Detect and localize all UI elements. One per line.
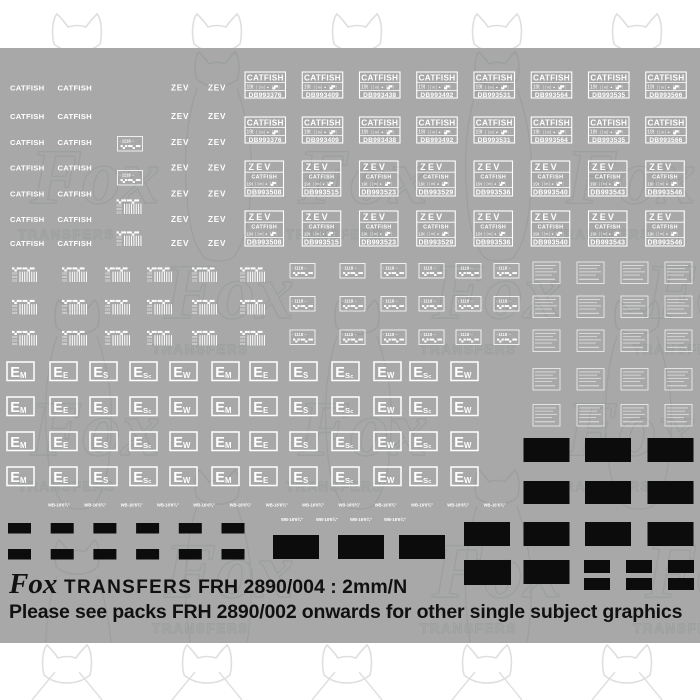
svg-text:DB993438: DB993438 [363, 92, 396, 99]
svg-text:S: S [103, 406, 108, 415]
svg-text:CATFISH: CATFISH [10, 138, 45, 147]
svg-text:▀▄▀ ▀▀▄ ▀▀: ▀▄▀ ▀▀▄ ▀▀ [121, 179, 142, 183]
svg-text:E: E [63, 441, 68, 450]
svg-text:≡≡≡: ≡≡≡ [62, 311, 68, 315]
svg-text:▀▄▀ ▀▀▄ ▀▀: ▀▄▀ ▀▀▄ ▀▀ [384, 339, 405, 343]
svg-text:CATFISH: CATFISH [58, 83, 93, 92]
svg-text:∙ 1118 ∙∙: ∙ 1118 ∙∙ [342, 332, 357, 337]
svg-text:CATFISH: CATFISH [533, 74, 570, 83]
svg-text:M: M [20, 476, 27, 485]
svg-text:CATFISH: CATFISH [476, 74, 513, 83]
svg-text:19t: 19t [418, 85, 426, 91]
svg-text:E: E [413, 400, 423, 416]
svg-text:FRH 2890/004 : 2mm/N: FRH 2890/004 : 2mm/N [198, 576, 407, 598]
svg-text:E: E [53, 435, 63, 451]
svg-text:DB993376: DB993376 [249, 137, 282, 144]
svg-text:19t: 19t [590, 231, 597, 236]
svg-text:∙ 1118 ∙∙: ∙ 1118 ∙∙ [496, 299, 511, 304]
svg-text:19t: 19t [418, 130, 426, 136]
svg-text:WB-16′6¾″: WB-16′6¾″ [121, 503, 143, 508]
svg-text:19t: 19t [247, 231, 254, 236]
svg-text:E: E [10, 365, 20, 381]
svg-text:ZEV: ZEV [208, 189, 226, 198]
svg-text:DB993540: DB993540 [533, 189, 568, 196]
svg-text:E: E [413, 365, 423, 381]
svg-text:WB-16′6¾″: WB-16′6¾″ [230, 503, 252, 508]
svg-text:E: E [93, 435, 103, 451]
svg-text:CATFISH: CATFISH [590, 74, 627, 83]
svg-text:E: E [173, 470, 183, 486]
svg-text:∙ 1118 ∙∙: ∙ 1118 ∙∙ [292, 332, 307, 337]
svg-text:E: E [293, 400, 303, 416]
svg-text:E: E [253, 470, 263, 486]
svg-text:19t: 19t [476, 85, 484, 91]
svg-text:19t: 19t [418, 181, 425, 186]
svg-text:E: E [63, 406, 68, 415]
svg-text:19t: 19t [590, 130, 598, 136]
svg-text:c: c [148, 374, 151, 380]
svg-text:DB993531: DB993531 [478, 137, 511, 144]
svg-text:∙ 1118 ∙∙: ∙ 1118 ∙∙ [458, 332, 473, 337]
svg-text:▀▄▀ ▀▀▄ ▀▀: ▀▄▀ ▀▀▄ ▀▀ [343, 272, 364, 276]
svg-text:DB993515: DB993515 [304, 239, 339, 246]
svg-text:W: W [464, 476, 472, 485]
svg-text:▀▄▀ ▀▀▄ ▀▀: ▀▄▀ ▀▀▄ ▀▀ [343, 339, 364, 343]
svg-text:ZEV: ZEV [208, 163, 226, 172]
svg-text:∙ 1118 ∙∙: ∙ 1118 ∙∙ [421, 332, 436, 337]
svg-text:ZEV: ZEV [249, 162, 273, 172]
svg-text:E: E [133, 435, 143, 451]
svg-text:Fox: Fox [8, 568, 57, 600]
svg-text:E: E [263, 441, 268, 450]
svg-text:CATFISH: CATFISH [304, 74, 341, 83]
svg-text:CATFISH: CATFISH [361, 119, 398, 128]
svg-text:DB993508: DB993508 [247, 239, 282, 246]
svg-text:19t: 19t [361, 85, 369, 91]
svg-text:DB993566: DB993566 [649, 137, 682, 144]
svg-text:WB-16′6¾″: WB-16′6¾″ [281, 517, 303, 522]
svg-text:CATFISH: CATFISH [652, 175, 678, 181]
svg-text:DB993535: DB993535 [592, 92, 625, 99]
svg-text:≡≡≡: ≡≡≡ [105, 342, 111, 346]
svg-text:c: c [428, 479, 431, 485]
svg-text:E: E [377, 400, 387, 416]
svg-text:c: c [148, 479, 151, 485]
svg-text:▀▄▀ ▀▀▄ ▀▀: ▀▄▀ ▀▀▄ ▀▀ [459, 339, 480, 343]
svg-text:19t: 19t [361, 181, 368, 186]
svg-text:DB993529: DB993529 [418, 239, 453, 246]
svg-text:ZEV: ZEV [208, 138, 226, 147]
svg-text:CATFISH: CATFISH [10, 189, 45, 198]
svg-text:CATFISH: CATFISH [366, 175, 392, 181]
svg-text:ZEV: ZEV [420, 212, 444, 222]
svg-text:ZEV: ZEV [208, 112, 226, 121]
svg-text:W: W [183, 441, 191, 450]
svg-text:19t: 19t [476, 181, 483, 186]
svg-text:WB-16′6¾″: WB-16′6¾″ [484, 503, 506, 508]
svg-text:≡≡≡: ≡≡≡ [62, 342, 68, 346]
svg-text:DB993536: DB993536 [476, 189, 511, 196]
svg-text:M: M [20, 441, 27, 450]
svg-text:c: c [350, 444, 353, 450]
svg-text:M: M [20, 406, 27, 415]
svg-text:M: M [225, 371, 232, 380]
svg-text:E: E [454, 435, 464, 451]
svg-text:WB-16′6¾″: WB-16′6¾″ [84, 503, 106, 508]
svg-text:E: E [215, 400, 225, 416]
svg-text:S: S [303, 441, 308, 450]
svg-text:ZEV: ZEV [208, 239, 226, 248]
svg-text:∙ 1118 ∙∙: ∙ 1118 ∙∙ [496, 332, 511, 337]
svg-text:∙ 1118 ∙∙: ∙ 1118 ∙∙ [458, 299, 473, 304]
svg-text:ZEV: ZEV [208, 215, 226, 224]
svg-text:E: E [253, 400, 263, 416]
svg-text:∙ 1118 ∙∙: ∙ 1118 ∙∙ [421, 266, 436, 271]
svg-text:ZEV: ZEV [478, 162, 502, 172]
svg-text:▀▄▀ ▀▀▄ ▀▀: ▀▄▀ ▀▀▄ ▀▀ [497, 272, 518, 276]
svg-text:DB993376: DB993376 [249, 92, 282, 99]
svg-text:E: E [63, 476, 68, 485]
svg-text:E: E [335, 435, 345, 451]
svg-text:CATFISH: CATFISH [538, 225, 564, 231]
svg-text:ZEV: ZEV [171, 189, 189, 198]
svg-text:S: S [303, 371, 308, 380]
svg-text:CATFISH: CATFISH [595, 175, 621, 181]
svg-text:E: E [263, 476, 268, 485]
svg-text:c: c [428, 444, 431, 450]
svg-text:S: S [303, 406, 308, 415]
svg-text:CATFISH: CATFISH [10, 215, 45, 224]
svg-text:c: c [350, 479, 353, 485]
svg-text:E: E [93, 365, 103, 381]
svg-text:DB993535: DB993535 [592, 137, 625, 144]
svg-text:W: W [387, 406, 395, 415]
svg-text:▀▄▀ ▀▀▄ ▀▀: ▀▄▀ ▀▀▄ ▀▀ [422, 339, 443, 343]
svg-text:E: E [173, 400, 183, 416]
svg-text:W: W [387, 441, 395, 450]
svg-text:≡≡≡: ≡≡≡ [192, 311, 198, 315]
svg-text:E: E [10, 400, 20, 416]
svg-text:CATFISH: CATFISH [476, 119, 513, 128]
svg-text:E: E [293, 365, 303, 381]
svg-text:E: E [133, 470, 143, 486]
svg-text:CATFISH: CATFISH [595, 225, 621, 231]
svg-text:CATFISH: CATFISH [58, 189, 93, 198]
svg-text:∙ 1118 ∙∙: ∙ 1118 ∙∙ [496, 266, 511, 271]
svg-text:WB-16′6¾″: WB-16′6¾″ [302, 503, 324, 508]
svg-text:CATFISH: CATFISH [247, 119, 284, 128]
svg-text:DB993523: DB993523 [361, 239, 396, 246]
svg-text:ZEV: ZEV [649, 212, 673, 222]
svg-text:c: c [148, 409, 151, 415]
svg-text:DB993546: DB993546 [647, 189, 682, 196]
svg-text:M: M [20, 371, 27, 380]
svg-text:∙ 1118 ∙∙: ∙ 1118 ∙∙ [342, 299, 357, 304]
svg-text:WB-16′6¾″: WB-16′6¾″ [411, 503, 433, 508]
svg-text:E: E [335, 400, 345, 416]
svg-text:E: E [377, 470, 387, 486]
svg-text:WB-16′6¾″: WB-16′6¾″ [266, 503, 288, 508]
svg-text:∙ 1118 ∙∙: ∙ 1118 ∙∙ [421, 299, 436, 304]
svg-text:E: E [215, 435, 225, 451]
svg-text:CATFISH: CATFISH [480, 225, 506, 231]
svg-text:ZEV: ZEV [171, 138, 189, 147]
svg-text:19t: 19t [590, 85, 598, 91]
svg-text:E: E [93, 400, 103, 416]
svg-text:∙ 1118 ∙∙: ∙ 1118 ∙∙ [383, 266, 398, 271]
svg-text:CATFISH: CATFISH [423, 225, 449, 231]
svg-text:c: c [350, 409, 353, 415]
svg-text:∙ 1118 ∙∙: ∙ 1118 ∙∙ [383, 299, 398, 304]
svg-text:CATFISH: CATFISH [648, 119, 685, 128]
svg-text:19t: 19t [476, 130, 484, 136]
svg-text:CATFISH: CATFISH [58, 112, 93, 121]
svg-text:ZEV: ZEV [535, 212, 559, 222]
svg-text:CATFISH: CATFISH [10, 112, 45, 121]
svg-text:▀▄▀ ▀▀▄ ▀▀: ▀▄▀ ▀▀▄ ▀▀ [293, 305, 314, 309]
svg-text:ZEV: ZEV [535, 162, 559, 172]
svg-text:WB-16′6¾″: WB-16′6¾″ [375, 503, 397, 508]
svg-text:19t: 19t [361, 130, 369, 136]
svg-text:19t: 19t [247, 130, 255, 136]
svg-text:CATFISH: CATFISH [10, 163, 45, 172]
svg-text:Fox: Fox [29, 133, 160, 220]
svg-text:DB993566: DB993566 [649, 92, 682, 99]
svg-text:≡≡≡: ≡≡≡ [12, 342, 18, 346]
svg-text:DB993531: DB993531 [478, 92, 511, 99]
svg-text:S: S [103, 476, 108, 485]
svg-text:E: E [413, 470, 423, 486]
svg-text:DB993515: DB993515 [304, 189, 339, 196]
svg-text:W: W [464, 371, 472, 380]
svg-text:E: E [93, 470, 103, 486]
svg-text:19t: 19t [361, 231, 368, 236]
svg-text:19t: 19t [418, 231, 425, 236]
svg-text:Fox: Fox [163, 248, 294, 335]
svg-text:▀▄▀ ▀▀▄ ▀▀: ▀▄▀ ▀▀▄ ▀▀ [384, 272, 405, 276]
svg-text:19t: 19t [647, 181, 654, 186]
svg-text:WB-16′6¾″: WB-16′6¾″ [193, 503, 215, 508]
svg-text:M: M [225, 406, 232, 415]
svg-text:E: E [377, 365, 387, 381]
svg-text:E: E [53, 400, 63, 416]
svg-text:CATFISH: CATFISH [480, 175, 506, 181]
svg-text:DB993438: DB993438 [363, 137, 396, 144]
svg-text:▀▄▀ ▀▀▄ ▀▀: ▀▄▀ ▀▀▄ ▀▀ [422, 305, 443, 309]
svg-text:▀▄▀ ▀▀▄ ▀▀: ▀▄▀ ▀▀▄ ▀▀ [497, 305, 518, 309]
svg-text:ZEV: ZEV [592, 162, 616, 172]
svg-text:E: E [335, 365, 345, 381]
svg-text:▀▄▀ ▀▀▄ ▀▀: ▀▄▀ ▀▀▄ ▀▀ [293, 339, 314, 343]
svg-text:ZEV: ZEV [208, 83, 226, 92]
svg-text:S: S [103, 371, 108, 380]
svg-text:E: E [53, 470, 63, 486]
svg-text:19t: 19t [647, 85, 655, 91]
svg-text:CATFISH: CATFISH [423, 175, 449, 181]
svg-text:≡≡≡: ≡≡≡ [117, 242, 123, 246]
svg-text:▀▄▀ ▀▀▄ ▀▀: ▀▄▀ ▀▀▄ ▀▀ [459, 272, 480, 276]
svg-text:19t: 19t [304, 85, 312, 91]
svg-text:E: E [413, 435, 423, 451]
svg-text:CATFISH: CATFISH [538, 175, 564, 181]
svg-text:E: E [10, 470, 20, 486]
svg-text:DB993536: DB993536 [476, 239, 511, 246]
svg-text:≡≡≡: ≡≡≡ [117, 210, 123, 214]
svg-text:W: W [183, 476, 191, 485]
svg-text:DB993508: DB993508 [247, 189, 282, 196]
svg-text:∙ 1118 ∙∙: ∙ 1118 ∙∙ [120, 139, 135, 144]
svg-text:CATFISH: CATFISH [58, 239, 93, 248]
svg-text:TRANSFERS: TRANSFERS [633, 342, 700, 357]
svg-text:W: W [387, 371, 395, 380]
svg-text:▀▄▀ ▀▀▄ ▀▀: ▀▄▀ ▀▀▄ ▀▀ [459, 305, 480, 309]
svg-text:∙ 1118 ∙∙: ∙ 1118 ∙∙ [292, 299, 307, 304]
svg-text:E: E [253, 365, 263, 381]
svg-text:ZEV: ZEV [363, 212, 387, 222]
svg-text:DB993546: DB993546 [647, 239, 682, 246]
svg-text:ZEV: ZEV [649, 162, 673, 172]
svg-text:▀▄▀ ▀▀▄ ▀▀: ▀▄▀ ▀▀▄ ▀▀ [293, 272, 314, 276]
svg-text:≡≡≡: ≡≡≡ [147, 278, 153, 282]
svg-text:E: E [173, 435, 183, 451]
svg-text:M: M [225, 476, 232, 485]
svg-text:WB-16′6¾″: WB-16′6¾″ [350, 517, 372, 522]
svg-text:W: W [464, 441, 472, 450]
svg-text:E: E [215, 470, 225, 486]
svg-text:WB-16′6¾″: WB-16′6¾″ [316, 517, 338, 522]
svg-text:E: E [454, 400, 464, 416]
svg-text:19t: 19t [247, 85, 255, 91]
svg-text:▀▄▀ ▀▀▄ ▀▀: ▀▄▀ ▀▀▄ ▀▀ [121, 145, 142, 149]
svg-text:ZEV: ZEV [171, 163, 189, 172]
svg-text:≡≡≡: ≡≡≡ [192, 278, 198, 282]
svg-text:∙ 1118 ∙∙: ∙ 1118 ∙∙ [342, 266, 357, 271]
svg-text:E: E [263, 406, 268, 415]
svg-text:ZEV: ZEV [249, 212, 273, 222]
svg-text:CATFISH: CATFISH [58, 163, 93, 172]
svg-text:CATFISH: CATFISH [251, 175, 277, 181]
svg-text:CATFISH: CATFISH [251, 225, 277, 231]
svg-text:ZEV: ZEV [420, 162, 444, 172]
svg-text:≡≡≡: ≡≡≡ [240, 342, 246, 346]
svg-text:CATFISH: CATFISH [309, 225, 335, 231]
svg-text:CATFISH: CATFISH [361, 74, 398, 83]
svg-text:DB993564: DB993564 [535, 137, 568, 144]
svg-text:ZEV: ZEV [171, 239, 189, 248]
svg-text:19t: 19t [533, 85, 541, 91]
svg-text:≡≡≡: ≡≡≡ [12, 311, 18, 315]
svg-text:E: E [293, 470, 303, 486]
svg-text:WB-16′6¾″: WB-16′6¾″ [338, 503, 360, 508]
svg-text:ZEV: ZEV [306, 212, 330, 222]
svg-text:c: c [350, 374, 353, 380]
svg-text:∙ 1118 ∙∙: ∙ 1118 ∙∙ [120, 173, 135, 178]
svg-text:19t: 19t [533, 231, 540, 236]
svg-text:19t: 19t [533, 181, 540, 186]
svg-text:DB993492: DB993492 [420, 92, 453, 99]
svg-text:19t: 19t [476, 231, 483, 236]
svg-text:WB-16′6¾″: WB-16′6¾″ [48, 503, 70, 508]
svg-text:CATFISH: CATFISH [533, 119, 570, 128]
svg-text:CATFISH: CATFISH [58, 215, 93, 224]
svg-text:CATFISH: CATFISH [304, 119, 341, 128]
svg-text:▀▄▀ ▀▀▄ ▀▀: ▀▄▀ ▀▀▄ ▀▀ [422, 272, 443, 276]
svg-text:ZEV: ZEV [478, 212, 502, 222]
svg-text:ZEV: ZEV [306, 162, 330, 172]
svg-text:WB-16′6¾″: WB-16′6¾″ [384, 517, 406, 522]
svg-text:E: E [215, 365, 225, 381]
svg-text:W: W [183, 371, 191, 380]
svg-text:∙ 1118 ∙∙: ∙ 1118 ∙∙ [292, 266, 307, 271]
svg-text:19t: 19t [590, 181, 597, 186]
svg-text:≡≡≡: ≡≡≡ [62, 278, 68, 282]
svg-text:19t: 19t [247, 181, 254, 186]
svg-text:E: E [293, 435, 303, 451]
svg-text:ZEV: ZEV [592, 212, 616, 222]
svg-text:E: E [133, 400, 143, 416]
svg-text:CATFISH: CATFISH [366, 225, 392, 231]
svg-text:TRANSFERS: TRANSFERS [633, 621, 700, 636]
svg-text:TRANSFERS: TRANSFERS [64, 577, 192, 598]
svg-text:DB993492: DB993492 [420, 137, 453, 144]
svg-text:DB993409: DB993409 [306, 92, 339, 99]
svg-text:E: E [263, 371, 268, 380]
svg-text:E: E [335, 470, 345, 486]
svg-text:WB-16′6¾″: WB-16′6¾″ [157, 503, 179, 508]
svg-text:≡≡≡: ≡≡≡ [105, 311, 111, 315]
svg-text:E: E [454, 365, 464, 381]
svg-text:ZEV: ZEV [363, 162, 387, 172]
svg-text:≡≡≡: ≡≡≡ [105, 278, 111, 282]
svg-text:≡≡≡: ≡≡≡ [240, 311, 246, 315]
svg-text:WB-16′6¾″: WB-16′6¾″ [447, 503, 469, 508]
svg-text:CATFISH: CATFISH [419, 74, 456, 83]
svg-text:S: S [103, 441, 108, 450]
svg-text:▀▄▀ ▀▀▄ ▀▀: ▀▄▀ ▀▀▄ ▀▀ [497, 339, 518, 343]
svg-text:19t: 19t [533, 130, 541, 136]
svg-text:TRANSFERS: TRANSFERS [152, 621, 249, 636]
svg-text:CATFISH: CATFISH [419, 119, 456, 128]
svg-text:W: W [387, 476, 395, 485]
svg-text:E: E [377, 435, 387, 451]
svg-text:E: E [53, 365, 63, 381]
svg-text:19t: 19t [647, 130, 655, 136]
svg-text:19t: 19t [304, 181, 311, 186]
svg-text:ZEV: ZEV [171, 112, 189, 121]
svg-text:DB993564: DB993564 [535, 92, 568, 99]
svg-text:CATFISH: CATFISH [10, 83, 45, 92]
svg-text:DB993543: DB993543 [590, 239, 625, 246]
svg-text:∙ 1118 ∙∙: ∙ 1118 ∙∙ [383, 332, 398, 337]
svg-text:E: E [63, 371, 68, 380]
svg-text:CATFISH: CATFISH [648, 74, 685, 83]
svg-text:19t: 19t [304, 231, 311, 236]
svg-text:≡≡≡: ≡≡≡ [12, 278, 18, 282]
svg-text:CATFISH: CATFISH [58, 138, 93, 147]
svg-text:DB993543: DB993543 [590, 189, 625, 196]
svg-text:DB993409: DB993409 [306, 137, 339, 144]
svg-text:E: E [253, 435, 263, 451]
svg-text:Please see packs FRH 2890/002: Please see packs FRH 2890/002 onwards fo… [9, 601, 683, 623]
svg-text:ZEV: ZEV [171, 83, 189, 92]
svg-text:ZEV: ZEV [171, 215, 189, 224]
svg-text:≡≡≡: ≡≡≡ [240, 278, 246, 282]
svg-text:DB993523: DB993523 [361, 189, 396, 196]
svg-text:c: c [148, 444, 151, 450]
svg-text:∙ 1118 ∙∙: ∙ 1118 ∙∙ [458, 266, 473, 271]
svg-text:E: E [454, 470, 464, 486]
svg-text:CATFISH: CATFISH [652, 225, 678, 231]
